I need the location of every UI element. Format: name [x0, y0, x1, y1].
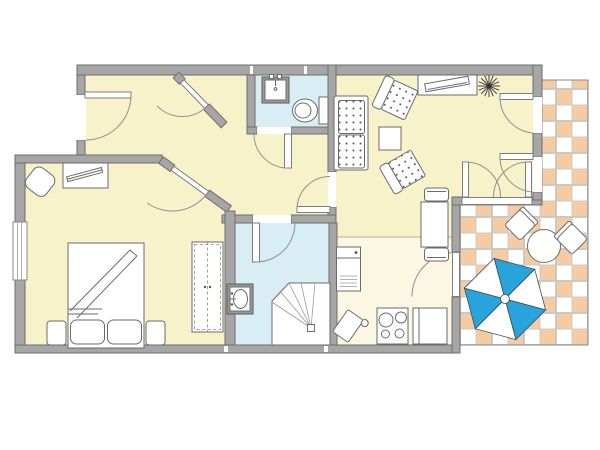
- pillow: [108, 320, 142, 344]
- wall-top: [77, 65, 540, 75]
- desk: [63, 163, 108, 188]
- counter-sink: [413, 308, 447, 344]
- wall-joint-notch: [224, 346, 228, 352]
- plant: [478, 75, 500, 97]
- wall-bedroom-top: [15, 155, 162, 163]
- dining-chair: [425, 188, 449, 201]
- wall-right-c: [533, 192, 542, 200]
- nightstand: [47, 321, 66, 345]
- wall-joint-notch: [304, 66, 307, 74]
- wall-right-a: [533, 65, 542, 97]
- sideboard-tv: [418, 75, 477, 95]
- wall-joint-notch: [250, 66, 253, 74]
- wardrobe: [192, 242, 223, 332]
- corner-shower: [272, 283, 330, 345]
- nightstand: [146, 321, 165, 345]
- wc-hand-basin: [262, 75, 289, 104]
- pillow: [71, 320, 105, 344]
- wall-wc-bottom-a: [247, 127, 257, 134]
- coffee-table: [379, 127, 401, 150]
- wall-hall-bath-b: [291, 215, 336, 223]
- floor-plan: [0, 0, 600, 450]
- dining-table: [421, 202, 448, 247]
- parasol-pole: [501, 295, 510, 304]
- toilet: [293, 97, 329, 124]
- wall-bathroom-left: [225, 211, 235, 345]
- wall-left-b: [15, 280, 25, 353]
- wall-left-a: [15, 163, 25, 222]
- wall-living-bottom-a: [452, 197, 462, 205]
- floor-plan-page: [0, 0, 600, 450]
- stove: [377, 308, 408, 344]
- wall-upper-left-a: [77, 75, 85, 95]
- wall-wc-left: [247, 75, 255, 127]
- dining-chair: [425, 248, 449, 261]
- two-seat-sofa: [334, 96, 368, 170]
- wash-basin: [227, 284, 253, 314]
- dining-set: [421, 188, 449, 261]
- bedroom-window: [13, 222, 27, 280]
- wall-kitchen-right-b: [452, 297, 460, 353]
- double-bed: [68, 243, 144, 348]
- wall-right-b: [533, 133, 542, 157]
- refrigerator: [337, 247, 361, 291]
- wall-joint-notch: [324, 346, 328, 352]
